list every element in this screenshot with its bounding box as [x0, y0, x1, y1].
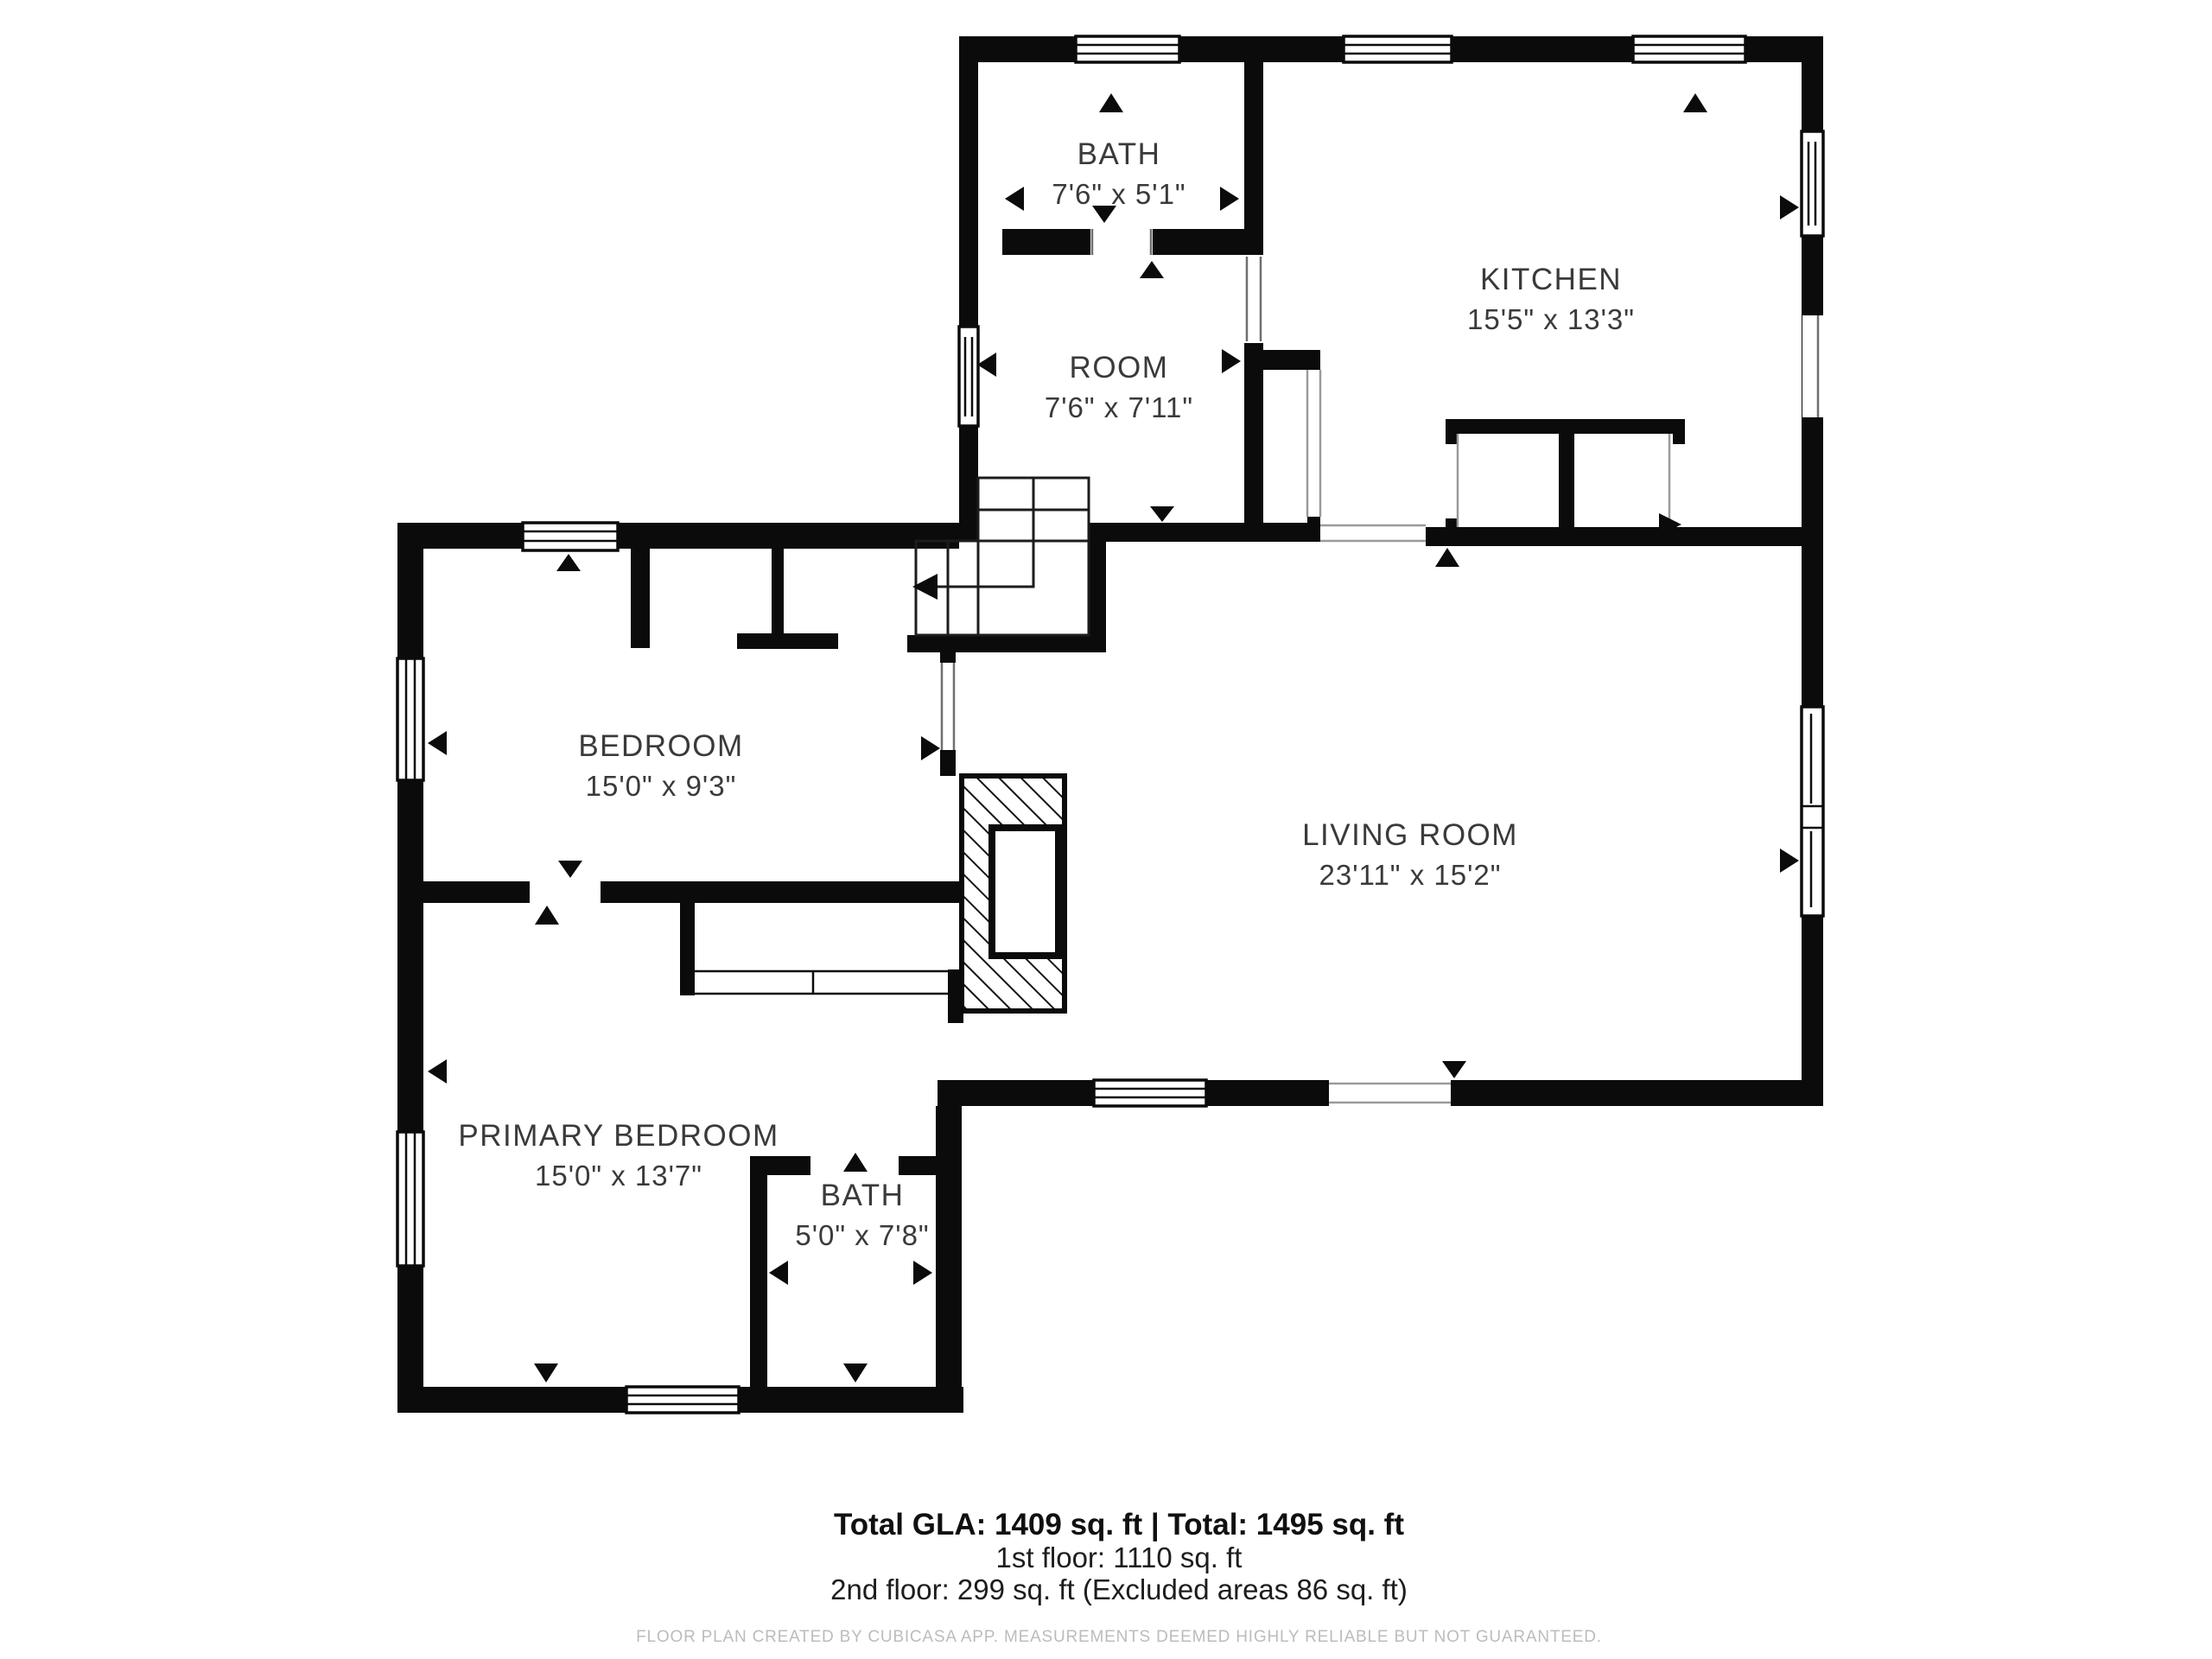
- room-label-living-room: LIVING ROOM 23'11" x 15'2": [1302, 818, 1518, 891]
- room-label-bath-lower: BATH 5'0" x 7'8": [795, 1179, 929, 1251]
- fireplace-icon: [962, 776, 1065, 1011]
- svg-text:KITCHEN: KITCHEN: [1480, 263, 1622, 296]
- svg-text:7'6" x 7'11": 7'6" x 7'11": [1045, 391, 1193, 423]
- window-icon: [959, 327, 978, 426]
- room-label-primary-bedroom: PRIMARY BEDROOM 15'0" x 13'7": [458, 1119, 779, 1192]
- floor-plan-canvas: BATH 7'6" x 5'1" KITCHEN 15'5" x 13'3" R…: [0, 0, 2212, 1659]
- first-floor-area-text: 1st floor: 1110 sq. ft: [996, 1541, 1243, 1573]
- svg-text:BATH: BATH: [1077, 137, 1161, 171]
- svg-text:BATH: BATH: [821, 1179, 905, 1212]
- window-icon: [626, 1387, 739, 1413]
- window-icon: [1633, 36, 1745, 62]
- window-icon: [1344, 36, 1452, 62]
- room-label-bath-upper: BATH 7'6" x 5'1": [1052, 137, 1185, 210]
- room-label-room: ROOM 7'6" x 7'11": [1045, 351, 1193, 423]
- svg-text:5'0" x 7'8": 5'0" x 7'8": [795, 1219, 929, 1251]
- door-openings: [530, 226, 1825, 1177]
- staircase-icon: [912, 478, 1089, 635]
- window-icon: [1802, 131, 1823, 236]
- footer-summary: Total GLA: 1409 sq. ft | Total: 1495 sq.…: [636, 1508, 1602, 1646]
- window-icon: [1094, 1080, 1206, 1106]
- svg-text:ROOM: ROOM: [1070, 351, 1169, 385]
- window-icon: [397, 1132, 423, 1266]
- window-icon: [523, 523, 618, 550]
- second-floor-area-text: 2nd floor: 299 sq. ft (Excluded areas 86…: [830, 1573, 1408, 1605]
- svg-text:BEDROOM: BEDROOM: [578, 729, 743, 763]
- disclaimer-text: FLOOR PLAN CREATED BY CUBICASA APP. MEAS…: [636, 1628, 1602, 1646]
- svg-text:7'6" x 5'1": 7'6" x 5'1": [1052, 178, 1185, 210]
- svg-text:15'0" x 9'3": 15'0" x 9'3": [586, 770, 737, 802]
- svg-text:PRIMARY BEDROOM: PRIMARY BEDROOM: [458, 1119, 779, 1153]
- window-icon: [397, 658, 423, 780]
- svg-text:15'0" x 13'7": 15'0" x 13'7": [535, 1160, 702, 1192]
- room-label-bedroom: BEDROOM 15'0" x 9'3": [578, 729, 743, 802]
- total-area-text: Total GLA: 1409 sq. ft | Total: 1495 sq.…: [834, 1508, 1404, 1541]
- svg-text:23'11" x 15'2": 23'11" x 15'2": [1319, 859, 1502, 891]
- floor-plan-page: BATH 7'6" x 5'1" KITCHEN 15'5" x 13'3" R…: [0, 0, 2212, 1659]
- room-label-kitchen: KITCHEN 15'5" x 13'3": [1467, 263, 1635, 335]
- svg-text:15'5" x 13'3": 15'5" x 13'3": [1467, 303, 1635, 335]
- window-icon: [1802, 707, 1823, 916]
- svg-text:LIVING ROOM: LIVING ROOM: [1302, 818, 1518, 852]
- window-icon: [1076, 36, 1179, 62]
